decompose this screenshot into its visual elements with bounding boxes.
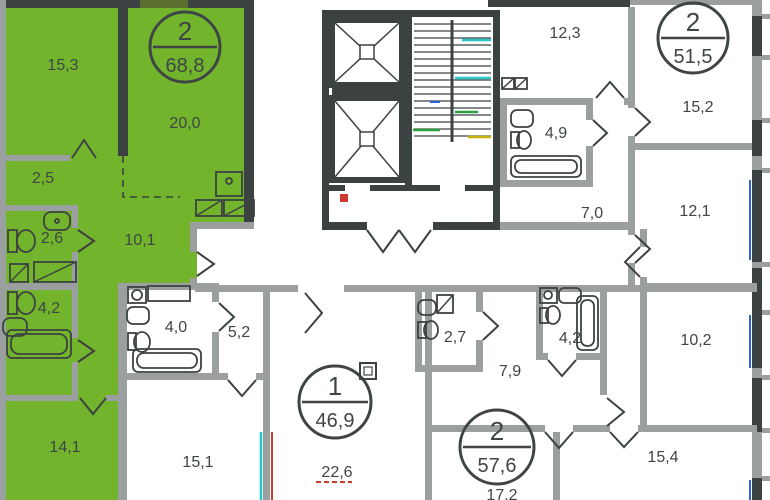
badge-rooms-count: 2 bbox=[490, 416, 504, 446]
badge-rooms-count: 2 bbox=[686, 7, 700, 37]
badge-area-value: 46,9 bbox=[316, 410, 355, 432]
room-label-right-bath: 4,2 bbox=[559, 330, 581, 347]
apartment-badge-bottom-right[interactable]: 2 57,6 bbox=[460, 410, 534, 484]
room-label-green-wc: 2,6 bbox=[41, 230, 63, 247]
floor-plan-canvas: 15,3 20,0 2,5 2,6 10,1 4,2 14,1 4,0 5,2 … bbox=[0, 0, 770, 500]
badge-area-value: 68,8 bbox=[166, 55, 205, 77]
badge-area-value: 57,6 bbox=[478, 455, 517, 477]
apartment-badge-top-right[interactable]: 2 51,5 bbox=[658, 3, 728, 73]
room-label-right-room2: 15,4 bbox=[647, 449, 678, 466]
room-label-green-bath: 4,2 bbox=[38, 300, 60, 317]
room-label-center-living: 22,6 bbox=[321, 464, 352, 481]
room-label-green-bedroom: 14,1 bbox=[49, 439, 80, 456]
room-label-top-room2: 15,2 bbox=[682, 99, 713, 116]
window-top-green bbox=[140, 0, 188, 8]
room-label-right-wc: 2,7 bbox=[444, 329, 466, 346]
badge-area-value: 51,5 bbox=[674, 46, 713, 68]
badge-rooms-count: 2 bbox=[178, 16, 192, 46]
room-label-right-living-cut: 17,2 bbox=[486, 487, 517, 500]
room-label-center-bedroom: 15,1 bbox=[182, 454, 213, 471]
room-label-center-hall: 5,2 bbox=[228, 324, 250, 341]
room-label-green-kitchen: 20,0 bbox=[169, 115, 200, 132]
room-label-green-hall: 2,5 bbox=[32, 170, 54, 187]
room-label-green-corridor: 10,1 bbox=[124, 232, 155, 249]
fire-equipment-marker bbox=[340, 194, 348, 202]
room-label-top-bath: 4,9 bbox=[545, 125, 567, 142]
apartment-badge-highlighted[interactable]: 2 68,8 bbox=[150, 12, 220, 82]
room-label-green-living: 15,3 bbox=[47, 57, 78, 74]
room-label-center-bath: 4,0 bbox=[165, 319, 187, 336]
room-label-right-room1: 10,2 bbox=[680, 332, 711, 349]
badge-rooms-count: 1 bbox=[328, 371, 342, 401]
room-label-top-hall: 7,0 bbox=[581, 205, 603, 222]
room-label-top-room1: 12,3 bbox=[549, 25, 580, 42]
room-label-right-hall: 7,9 bbox=[499, 363, 521, 380]
apartment-badge-center[interactable]: 1 46,9 bbox=[299, 366, 371, 438]
room-label-top-room3: 12,1 bbox=[679, 203, 710, 220]
